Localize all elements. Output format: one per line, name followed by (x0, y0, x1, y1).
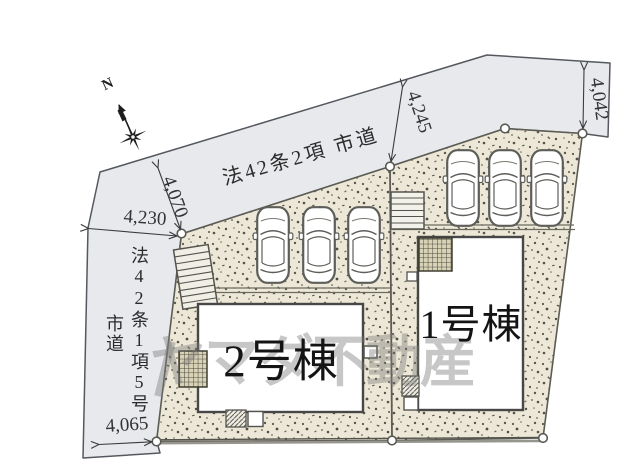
car-icon (527, 150, 567, 226)
utility-hatch-icon (226, 410, 263, 427)
stairs-icon (391, 192, 424, 229)
building-label-1: 1号棟 (420, 305, 523, 345)
car-icon (253, 207, 293, 283)
road-label-left-line1: 法42条1項5号 (130, 246, 148, 414)
building-label-2: 2号棟 (223, 340, 339, 385)
car-icon (299, 207, 339, 283)
road-label-left-line2: 市道 (105, 314, 123, 354)
car-icon (443, 150, 483, 226)
dimension-label-4065: 4,065 (105, 414, 149, 436)
north-compass-icon (118, 105, 147, 151)
car-icon (344, 207, 384, 283)
entrance-porch-icon (407, 272, 417, 281)
car-icon (485, 150, 525, 226)
dimension-label-4230: 4,230 (123, 207, 167, 229)
site-plan: ヤマダ不動産 法42条2項 市道 法42条1項5号 市道 4,230 4,070… (0, 0, 640, 476)
site-plan-drawing (0, 0, 640, 476)
deck-grid-icon (419, 238, 452, 271)
